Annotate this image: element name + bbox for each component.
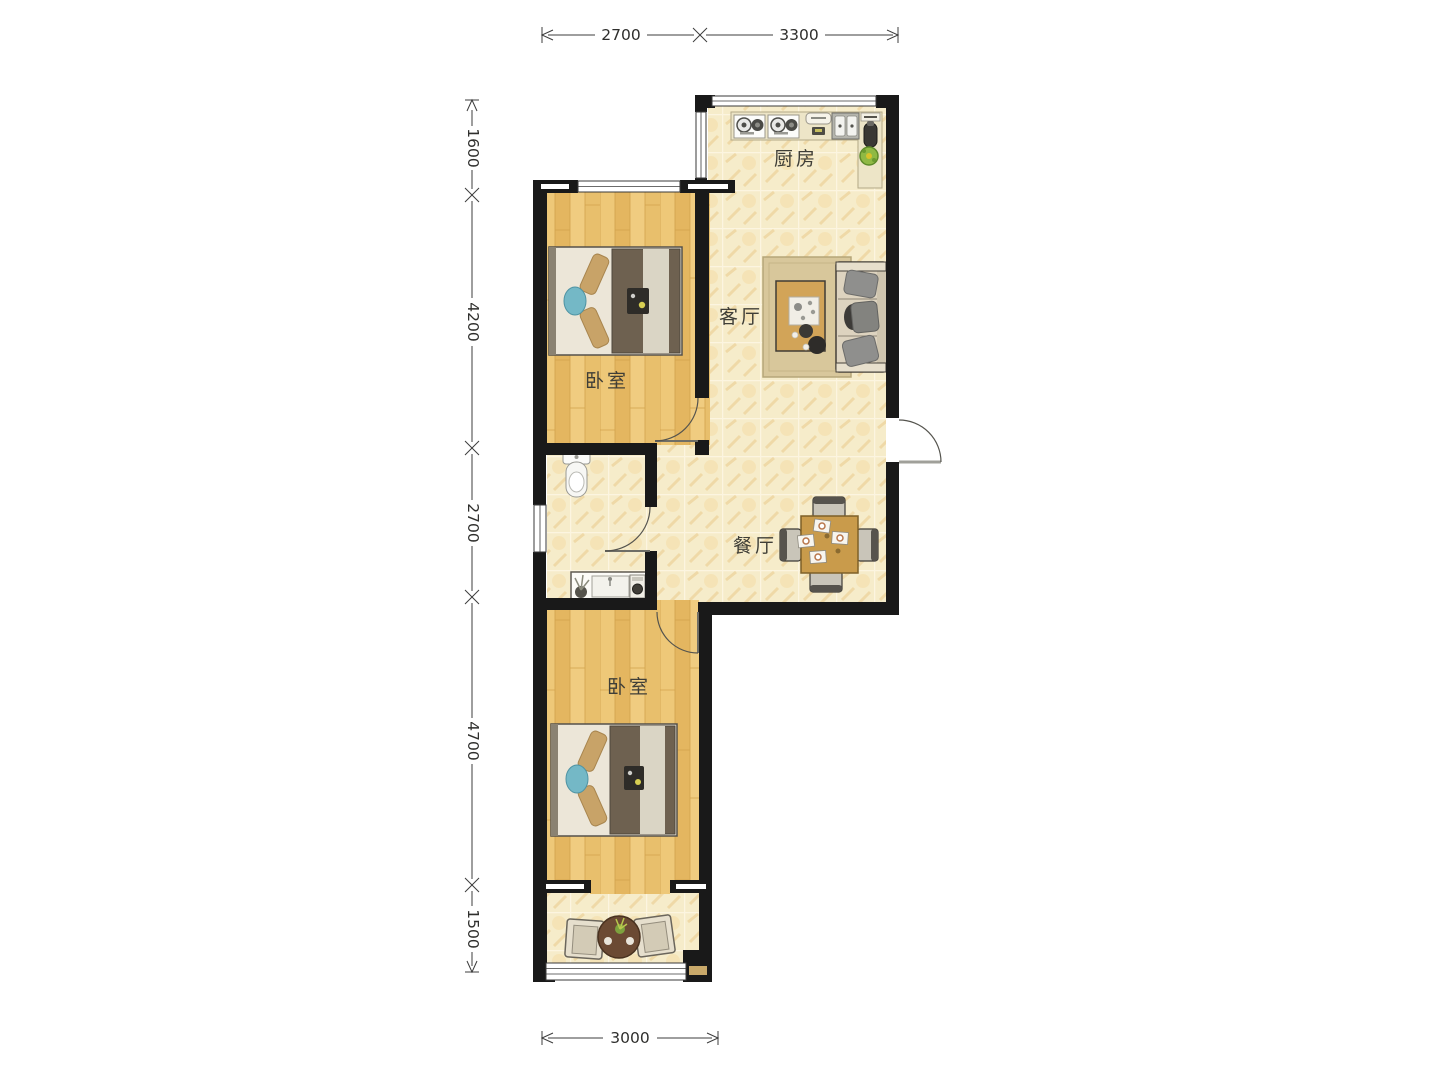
kitchen-plant-leaf-2 (872, 158, 876, 162)
teacup-1 (808, 301, 812, 305)
wall-east-lower (886, 462, 899, 615)
cooktop-2-grate-center (789, 123, 794, 128)
sink-drain-left (838, 124, 841, 127)
dim-left-arrow-top (467, 100, 477, 111)
window-balcony (546, 963, 686, 980)
toilet-button (575, 455, 579, 459)
door-entry-arc (899, 420, 941, 462)
dim-left-value-1: 1600 (464, 128, 482, 167)
wall-west-upper (533, 180, 547, 450)
balcony-chair-left-seat (572, 925, 598, 955)
dining-chair-right-back (871, 529, 878, 561)
cooktop-1-burner-center (742, 123, 747, 128)
floor-plan-svg: 厨房客厅卧室餐厅卧室270033001600420027004700150030… (0, 0, 1440, 1080)
cooktop-2-knobs (774, 132, 788, 135)
balcony-chair-right-seat (641, 921, 669, 952)
sofa-pillow-top (843, 269, 879, 298)
dim-top-value-2: 3300 (779, 26, 818, 44)
pier-slot-2 (688, 184, 728, 189)
balcony-table (598, 916, 640, 958)
wall-bathroom-top (533, 443, 657, 455)
floor-plan: 厨房客厅卧室餐厅卧室270033001600420027004700150030… (0, 0, 1440, 1080)
wall-bathroom-east-lower (645, 551, 657, 602)
pier-slot-balcony (689, 966, 707, 975)
table-bowl-2 (808, 336, 826, 354)
sofa-pillow-middle (851, 301, 880, 334)
bed-1-headboard (549, 247, 556, 355)
wall-east-upper (886, 95, 899, 418)
dining-chair-top-back (813, 497, 845, 504)
placemat-top-cup (819, 523, 825, 529)
water-heater (864, 123, 877, 147)
placemat-right-cup (837, 535, 843, 541)
kitchen-plant-leaf-1 (862, 149, 866, 153)
switch-panel-dots (864, 116, 877, 118)
table-dot-2 (803, 344, 809, 350)
label-living-room: 客厅 (719, 306, 763, 328)
dim-bottom-value-1: 3000 (610, 1029, 649, 1047)
bed-1-tray (627, 288, 649, 314)
teapot (794, 303, 802, 311)
teacup-3 (801, 316, 805, 320)
water-heater-handle (867, 121, 874, 126)
wall-bedroom1-east-pier (695, 440, 709, 455)
wall-west-bathroom-upper (533, 450, 546, 505)
bed-2-tray (624, 766, 644, 790)
bed-2-round-cushion (566, 765, 588, 793)
cooktop-1-grate-center (755, 123, 760, 128)
teacup-2 (811, 310, 815, 314)
dim-left-value-5: 1500 (464, 909, 482, 948)
wall-west-lower (533, 608, 547, 982)
bed-1-round-cushion (564, 287, 586, 315)
label-kitchen: 厨房 (774, 148, 818, 170)
balcony-table-cup-1 (604, 937, 612, 945)
pier-slot-4 (676, 884, 706, 889)
dining-table-dot-1 (825, 534, 830, 539)
wall-kitchen-west-top (695, 106, 707, 112)
wall-bedroom2-east (699, 615, 712, 982)
wall-dining-south (698, 602, 899, 615)
label-bedroom-2: 卧室 (607, 676, 651, 698)
label-bedroom-1: 卧室 (585, 370, 629, 392)
table-bowl-1 (799, 324, 813, 338)
dining-chair-bottom-back (810, 585, 842, 592)
washing-machine-panel (632, 577, 643, 581)
cooktop-1-knobs (740, 132, 754, 135)
sink-drain-right (850, 124, 853, 127)
table-dot-1 (792, 332, 798, 338)
dim-left-value-2: 4200 (464, 302, 482, 341)
wall-bedroom1-east (695, 190, 709, 398)
placemat-bottom-cup (815, 554, 821, 560)
wall-bathroom-bottom (533, 598, 657, 610)
dim-left-value-3: 2700 (464, 503, 482, 542)
cooktop-2-burner-center (776, 123, 781, 128)
floor-balcony-doorway (590, 878, 670, 894)
bed-2-headboard (551, 724, 558, 836)
balcony-table-cup-2 (626, 937, 634, 945)
bed-2-tray-dot (628, 771, 632, 775)
bed-2-tray-cup (635, 779, 641, 785)
sofa-arm-top (836, 262, 886, 271)
bed-1-tray-cup (639, 302, 645, 308)
dim-left-value-4: 4700 (464, 721, 482, 760)
dining-table-dot-2 (836, 549, 841, 554)
washing-machine-door (633, 584, 643, 594)
toilet-seat (569, 472, 584, 492)
bed-1-tray-dot (631, 294, 635, 298)
pier-slot-1 (541, 184, 569, 189)
dining-chair-left-back (780, 529, 787, 561)
pier-slot-3 (546, 884, 584, 889)
dim-top-value-1: 2700 (601, 26, 640, 44)
placemat-left-cup (803, 538, 809, 544)
kitchen-plant-center (866, 153, 872, 159)
kitchen-small-appliance-label (815, 129, 822, 132)
kitchen-appliance-vents (811, 117, 826, 119)
label-dining-room: 餐厅 (733, 535, 777, 557)
wall-bathroom-east-upper (645, 455, 657, 507)
